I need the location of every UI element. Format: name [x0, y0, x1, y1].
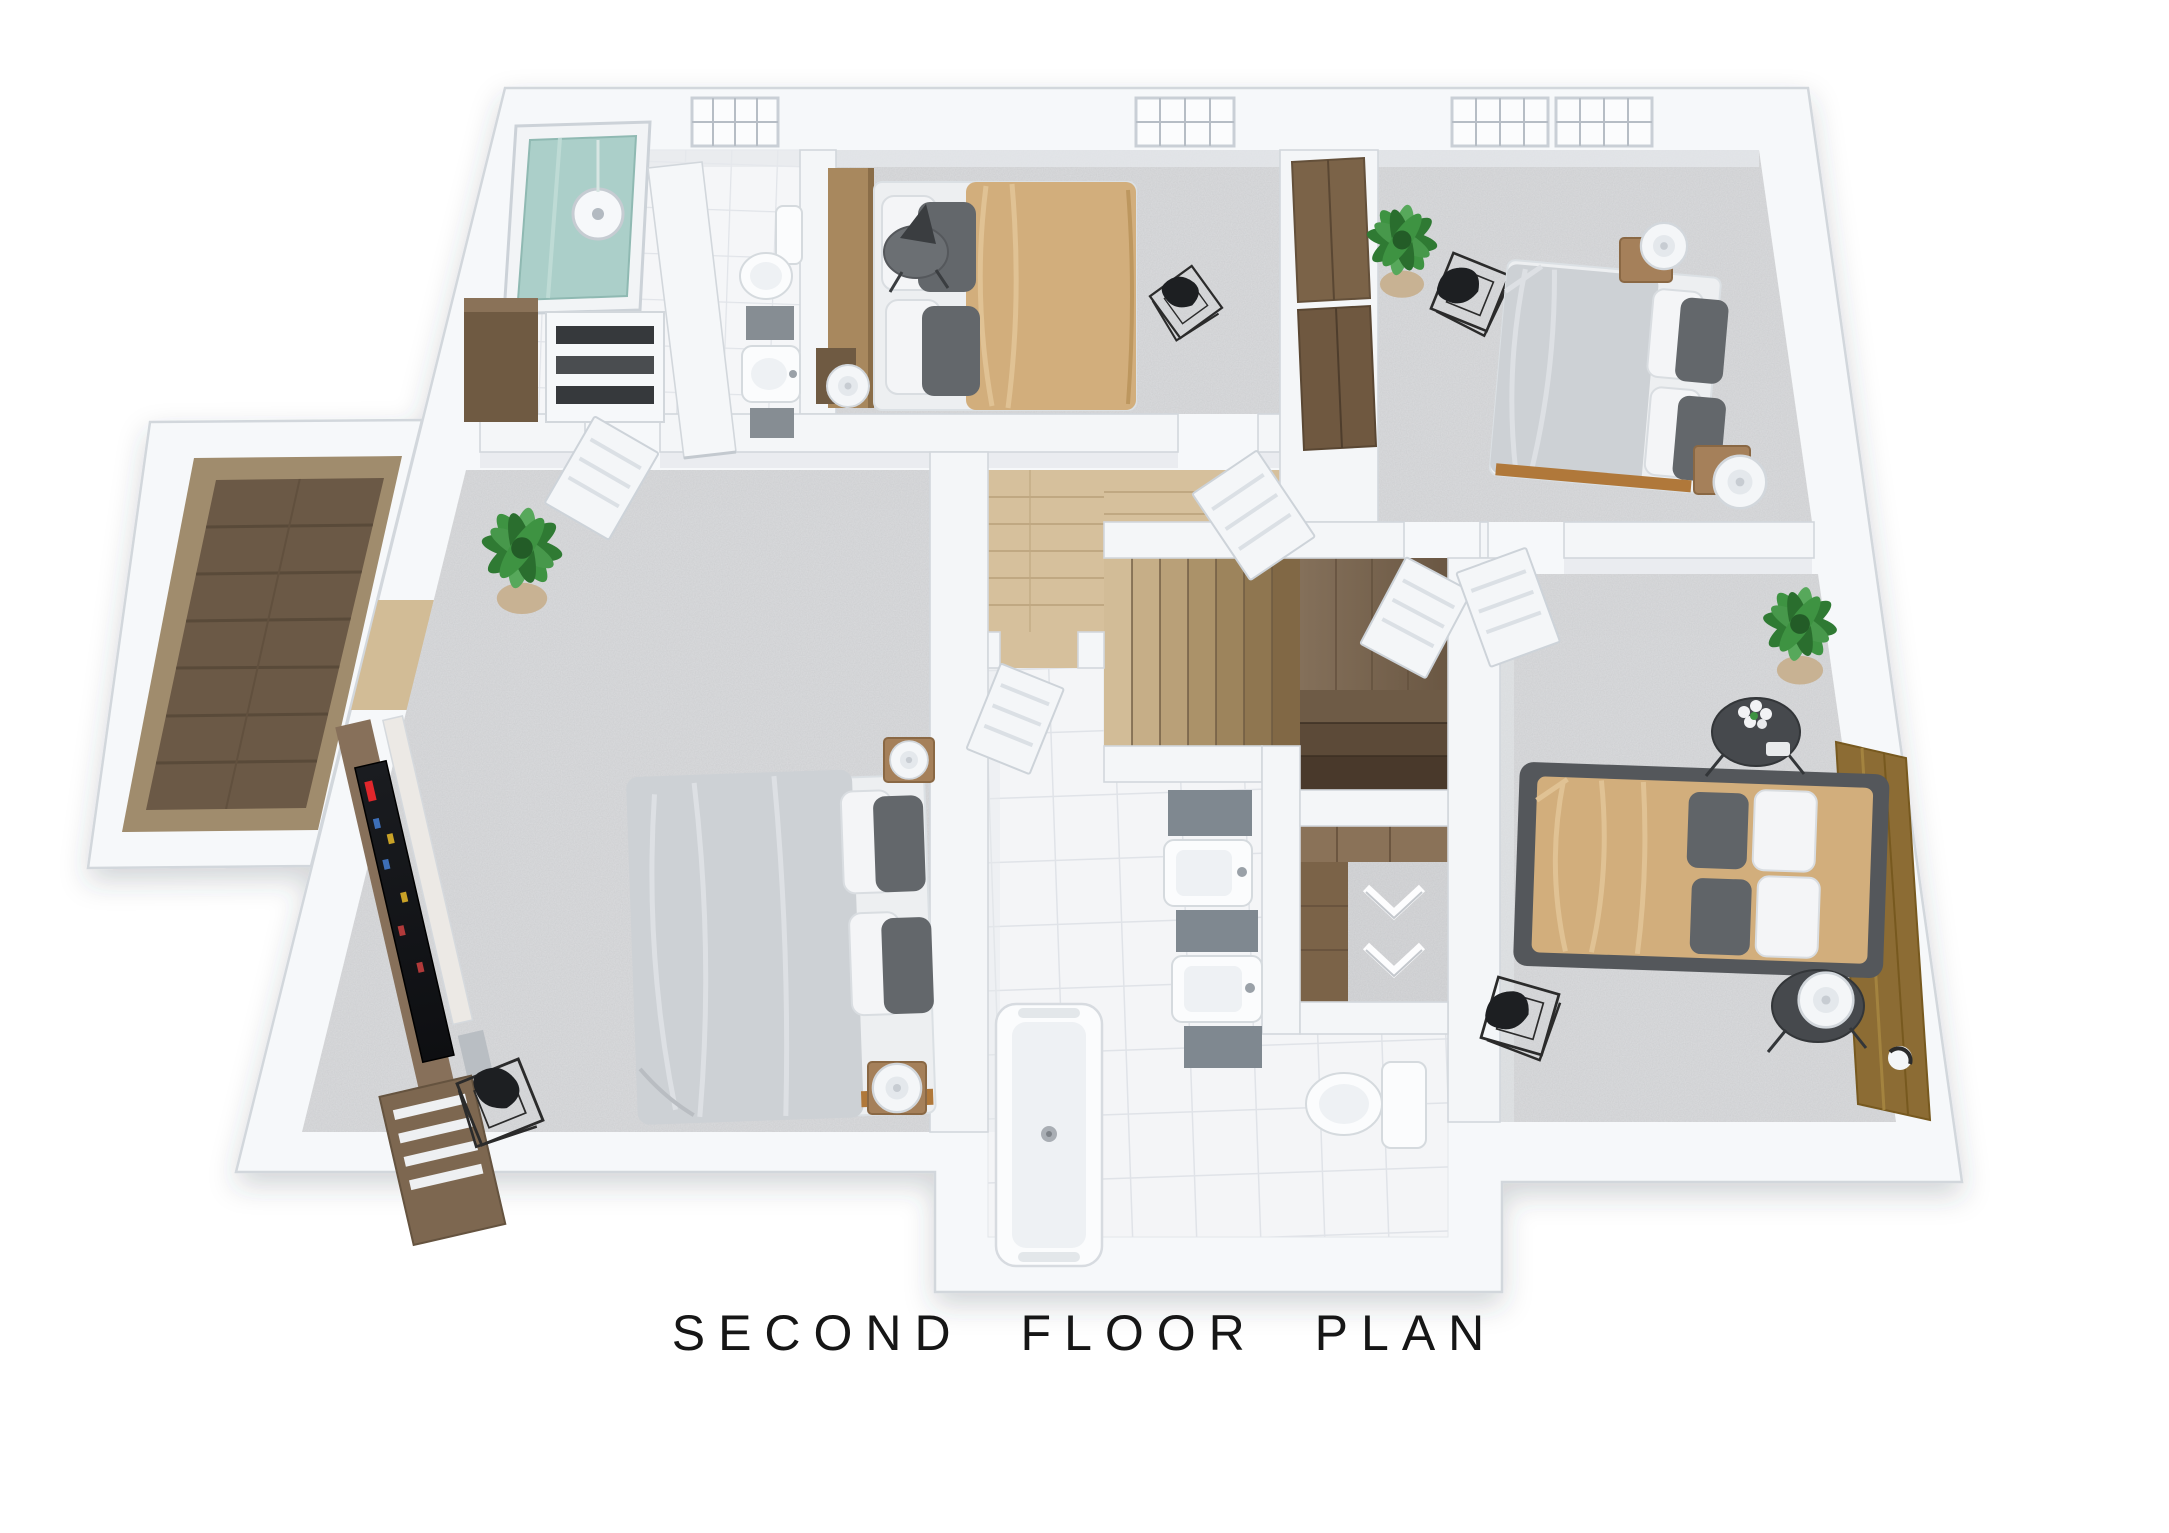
pillow-gray-1 [1674, 297, 1729, 385]
ensuite-bath-mat-1 [746, 306, 794, 340]
pillow-gray-1 [1686, 792, 1749, 870]
ensuite-storage [464, 298, 664, 422]
wall-master-hall [930, 452, 988, 1132]
wall-sconce-2 [1888, 1046, 1912, 1070]
pillow-white-2 [1755, 876, 1820, 958]
window-bedroom-top-middle [1136, 98, 1234, 146]
bed-top-middle [828, 168, 1136, 410]
window-bedroom-top-right-2 [1556, 98, 1652, 146]
plan-title: SECOND FLOOR PLAN [0, 1304, 2169, 1362]
bathroom-door-threshold [1000, 632, 1078, 668]
pillow-gray-2 [1689, 878, 1752, 956]
wall-closet-north [1300, 790, 1448, 826]
floor-plan-page: SECOND FLOOR PLAN [0, 0, 2169, 1533]
glass-shower [504, 122, 650, 314]
ensuite-bath-mat-2 [750, 408, 794, 438]
sink-2 [1172, 956, 1262, 1022]
duvet-tan [966, 182, 1136, 410]
wall-under-stairs [1104, 746, 1262, 782]
bed-right [1513, 762, 1890, 979]
pillow-gray-2 [922, 306, 980, 396]
wall-vanity-back [1262, 746, 1300, 1034]
pillow-gray-2 [881, 917, 934, 1015]
sink-1 [1164, 840, 1252, 906]
duvet-gray [626, 769, 864, 1125]
wall-closet-south [1300, 1002, 1448, 1034]
window-bedroom-top-right-1 [1452, 98, 1548, 146]
pillow-white-1 [1752, 790, 1817, 872]
ensuite-sink [742, 346, 800, 402]
nightstand-bottom [868, 1062, 926, 1114]
pillow-gray-1 [873, 795, 926, 893]
window-ensuite [692, 98, 778, 146]
nightstand-top [884, 738, 934, 782]
bathtub [996, 1004, 1102, 1266]
